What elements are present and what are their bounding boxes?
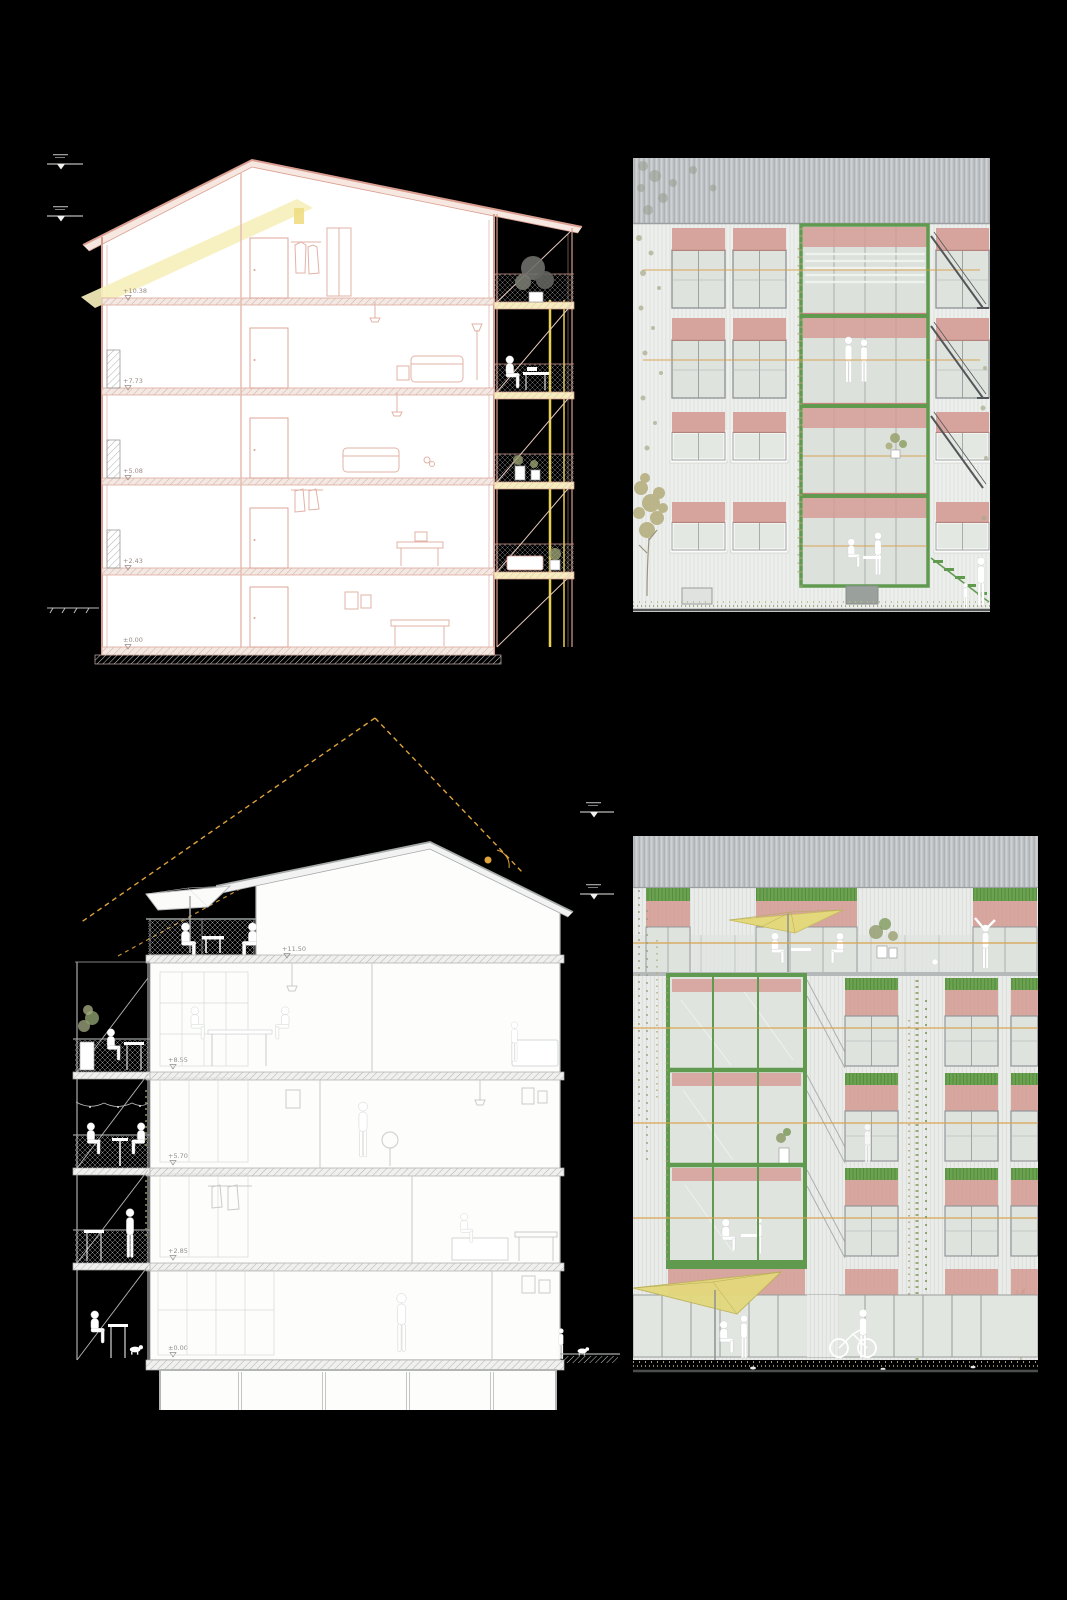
balcony-railings (494, 274, 574, 544)
panel-section-upper: +10.38 +7.73 +5.08 +2.43 ±0.00 (45, 150, 585, 670)
winter-garden (666, 975, 807, 1269)
svg-text:+11.50: +11.50 (282, 945, 306, 953)
skylight-shaft (294, 208, 304, 224)
bird-silhouette (933, 960, 938, 965)
awning (803, 498, 927, 518)
window (672, 228, 725, 308)
window (670, 412, 727, 463)
window (1011, 978, 1038, 1066)
basement-window (682, 588, 712, 604)
svg-text:±0.00: ±0.00 (168, 1344, 188, 1352)
presentation-sheet: { "sheet": { "background_color": "#00000… (0, 0, 1067, 1600)
balcony-slabs (494, 302, 574, 579)
svg-text:+2.85: +2.85 (168, 1247, 188, 1255)
svg-text:+5.08: +5.08 (123, 467, 143, 475)
panel-elevation-upper (633, 158, 990, 618)
window (934, 412, 990, 463)
terrace-opening (646, 888, 690, 975)
awning (803, 408, 927, 428)
panel-elevation-lower (633, 820, 1038, 1380)
window (845, 1168, 898, 1256)
window (672, 318, 725, 398)
balcony-tower (494, 214, 574, 647)
window (945, 1168, 998, 1256)
dog-silhouette (130, 1345, 143, 1355)
awning (803, 227, 927, 247)
green-balcony-bay (799, 224, 929, 588)
window (945, 978, 998, 1066)
svg-text:+2.43: +2.43 (123, 557, 143, 565)
terrain-line (47, 608, 99, 613)
terrain-right (560, 1354, 620, 1363)
window (936, 228, 989, 308)
window (733, 228, 786, 308)
balcony-tower (73, 962, 150, 1360)
section-building-body (83, 160, 582, 655)
ground-terrace (91, 1311, 143, 1358)
wall-anchors (107, 350, 120, 568)
svg-text:+7.73: +7.73 (123, 377, 143, 385)
window (845, 1073, 898, 1161)
svg-text:±0.00: ±0.00 (123, 636, 143, 644)
awning (672, 1073, 801, 1086)
panel-section-lower: +11.50 +8.55 +5.70 +2.85 ±0.00 (60, 710, 620, 1410)
window (845, 978, 898, 1066)
svg-text:+10.38: +10.38 (123, 287, 147, 295)
svg-text:+8.55: +8.55 (168, 1056, 188, 1064)
grass (633, 1362, 1038, 1370)
window (733, 318, 786, 398)
datum-marker (47, 206, 83, 222)
window (670, 502, 727, 553)
terrace-opening (756, 888, 857, 975)
basement (160, 1370, 556, 1410)
window (936, 318, 989, 398)
awning (672, 1168, 801, 1181)
window (731, 502, 788, 553)
foundation (95, 655, 501, 664)
window (934, 502, 990, 553)
attic-corrugated-band (633, 158, 990, 224)
awning (845, 1269, 898, 1295)
svg-text:+5.70: +5.70 (168, 1152, 188, 1160)
green-sill (666, 1260, 807, 1269)
window (731, 412, 788, 463)
datum-marker (47, 154, 83, 170)
datum-marker (580, 802, 614, 818)
awning (945, 1269, 998, 1295)
awning (803, 318, 927, 338)
attic-corrugated-band (633, 836, 1038, 888)
awning (672, 979, 801, 992)
datum-marker (580, 884, 614, 900)
roof-terrace (146, 886, 257, 957)
window (1011, 1168, 1038, 1256)
awning (1011, 1269, 1038, 1295)
sun-dot (485, 857, 492, 864)
window (945, 1073, 998, 1161)
window (1011, 1073, 1038, 1161)
